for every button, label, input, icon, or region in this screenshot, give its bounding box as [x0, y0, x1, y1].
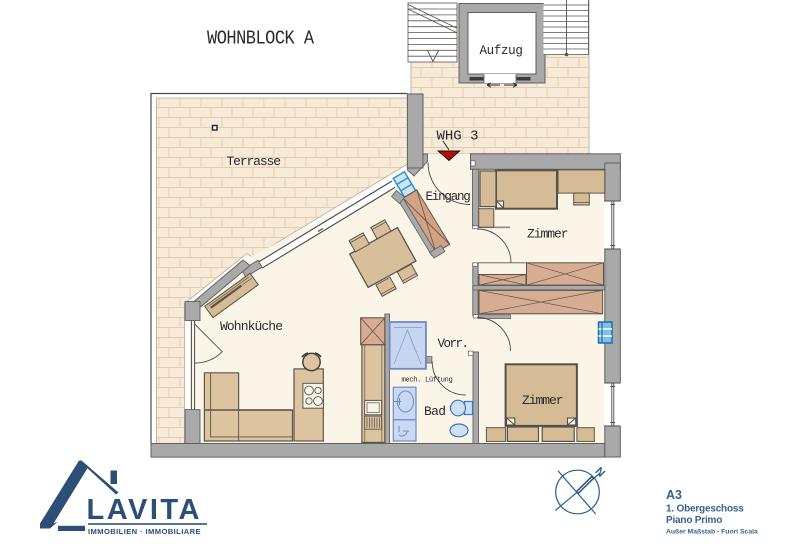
svg-text:Eingang: Eingang: [426, 190, 471, 204]
svg-text:Außer Maßstab - Fuori Scala: Außer Maßstab - Fuori Scala: [666, 529, 758, 536]
svg-text:WHG 3: WHG 3: [437, 129, 479, 145]
svg-text:mech. Lüftung: mech. Lüftung: [402, 377, 453, 385]
svg-text:Piano Primo: Piano Primo: [666, 515, 722, 526]
svg-text:1. Obergeschoss: 1. Obergeschoss: [666, 504, 744, 515]
svg-text:WOHNBLOCK A: WOHNBLOCK A: [207, 29, 314, 50]
svg-text:IMMOBILIEN · IMMOBILIARE: IMMOBILIEN · IMMOBILIARE: [88, 527, 201, 536]
svg-text:Zimmer: Zimmer: [522, 393, 563, 408]
svg-text:LAVITA: LAVITA: [87, 494, 202, 526]
svg-text:Wohnküche: Wohnküche: [220, 319, 282, 334]
svg-text:A3: A3: [666, 488, 682, 502]
svg-text:Zimmer: Zimmer: [527, 227, 568, 242]
svg-text:Aufzug: Aufzug: [480, 44, 523, 58]
svg-text:Vorr.: Vorr.: [438, 337, 468, 351]
svg-text:Terrasse: Terrasse: [227, 154, 281, 169]
svg-text:Bad: Bad: [424, 404, 445, 419]
